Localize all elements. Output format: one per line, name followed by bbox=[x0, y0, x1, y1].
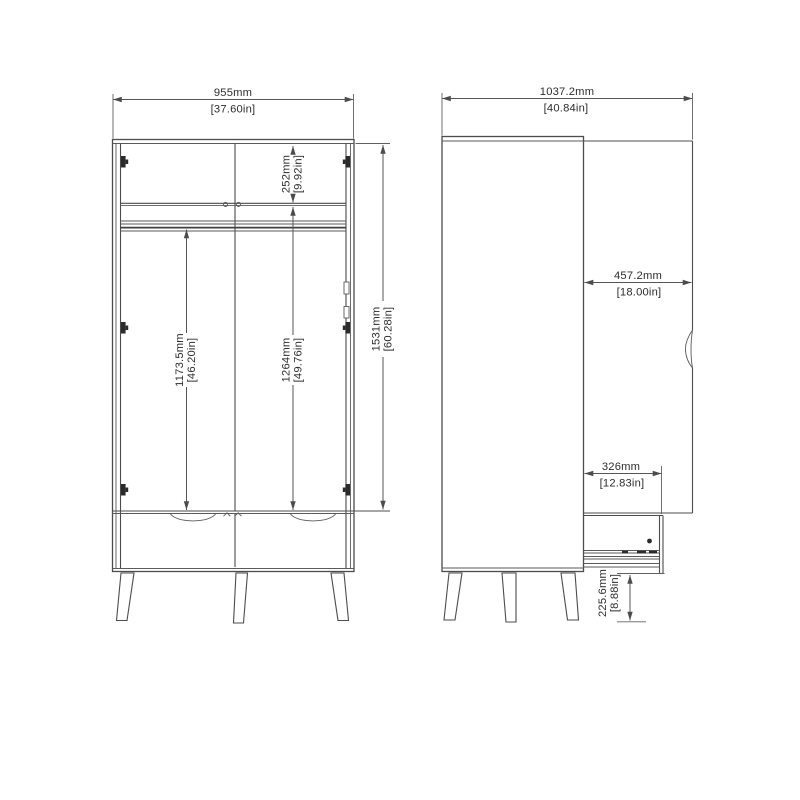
dim-drawer-extension-inch: [12.83in] bbox=[600, 478, 645, 490]
dimension-drawing-canvas: 955mm [37.60in] 252mm [9.92in] 1173.5mm … bbox=[0, 0, 800, 800]
dim-overall-depth: 1037.2mm [40.84in] bbox=[442, 86, 693, 140]
side-open-door bbox=[584, 141, 693, 513]
dim-front-width-mm: 955mm bbox=[214, 87, 252, 99]
dim-top-compartment: 252mm [9.92in] bbox=[281, 146, 305, 203]
drawer-slide-clip bbox=[622, 551, 628, 554]
front-leg-right bbox=[331, 573, 349, 621]
dim-underside-clearance-inch: [8.88in] bbox=[609, 574, 621, 612]
dim-interior-left-inch: [46.20in] bbox=[186, 338, 198, 383]
dim-door-width: 457.2mm [18.00in] bbox=[585, 270, 692, 299]
dim-door-height-inch: [60.28in] bbox=[383, 307, 395, 352]
front-hinges-left bbox=[121, 156, 128, 496]
dim-overall-depth-mm: 1037.2mm bbox=[540, 86, 594, 98]
dim-top-compartment-inch: [9.92in] bbox=[293, 155, 305, 193]
side-view: 1037.2mm [40.84in] 457.2mm [18.00in] 326… bbox=[442, 86, 693, 622]
dim-door-width-inch: [18.00in] bbox=[617, 287, 662, 299]
front-cabinet-outline bbox=[113, 140, 355, 572]
dim-interior-right-mm: 1264mm bbox=[281, 338, 293, 383]
wardrobe-dimension-diagram: 955mm [37.60in] 252mm [9.92in] 1173.5mm … bbox=[0, 0, 800, 800]
front-legs bbox=[117, 573, 349, 623]
side-open-drawer bbox=[584, 516, 664, 574]
drawer-knob-screw bbox=[647, 539, 652, 544]
dim-drawer-extension: 326mm [12.83in] bbox=[585, 461, 662, 514]
dim-interior-left: 1173.5mm [46.20in] bbox=[174, 230, 198, 511]
front-drawer-section bbox=[113, 511, 391, 567]
side-leg-right bbox=[561, 573, 579, 620]
side-leg-middle bbox=[502, 573, 516, 622]
front-leg-middle bbox=[234, 573, 248, 623]
dim-front-width-inch: [37.60in] bbox=[211, 104, 256, 116]
drawer-handle-cutout-right bbox=[290, 514, 336, 521]
dim-interior-right: 1264mm [49.76in] bbox=[281, 207, 305, 510]
dim-underside-clearance: 225.6mm [8.88in] bbox=[597, 569, 665, 622]
dim-top-compartment-mm: 252mm bbox=[281, 155, 293, 193]
dim-door-height: 1531mm [60.28in] bbox=[356, 144, 395, 510]
dim-interior-left-mm: 1173.5mm bbox=[174, 333, 186, 387]
side-leg-left bbox=[444, 573, 462, 620]
side-legs bbox=[444, 573, 579, 622]
dim-drawer-extension-mm: 326mm bbox=[602, 461, 640, 473]
front-view: 955mm [37.60in] 252mm [9.92in] 1173.5mm … bbox=[113, 87, 395, 623]
front-top-shelf bbox=[121, 202, 347, 206]
drawer-slide-clip bbox=[637, 551, 646, 554]
drawer-slide-clip bbox=[649, 551, 657, 554]
side-cabinet-outline bbox=[442, 137, 584, 572]
dim-underside-clearance-mm: 225.6mm bbox=[597, 569, 609, 617]
front-hanging-rail bbox=[121, 221, 347, 231]
dim-overall-depth-inch: [40.84in] bbox=[544, 103, 589, 115]
drawer-handle-cutout-left bbox=[170, 514, 216, 521]
door-handle-groove-inner bbox=[691, 330, 693, 368]
dim-door-width-mm: 457.2mm bbox=[614, 270, 662, 282]
front-leg-left bbox=[117, 573, 135, 621]
dim-interior-right-inch: [49.76in] bbox=[293, 338, 305, 383]
dim-door-height-mm: 1531mm bbox=[371, 307, 383, 352]
dim-front-width: 955mm [37.60in] bbox=[113, 87, 354, 139]
